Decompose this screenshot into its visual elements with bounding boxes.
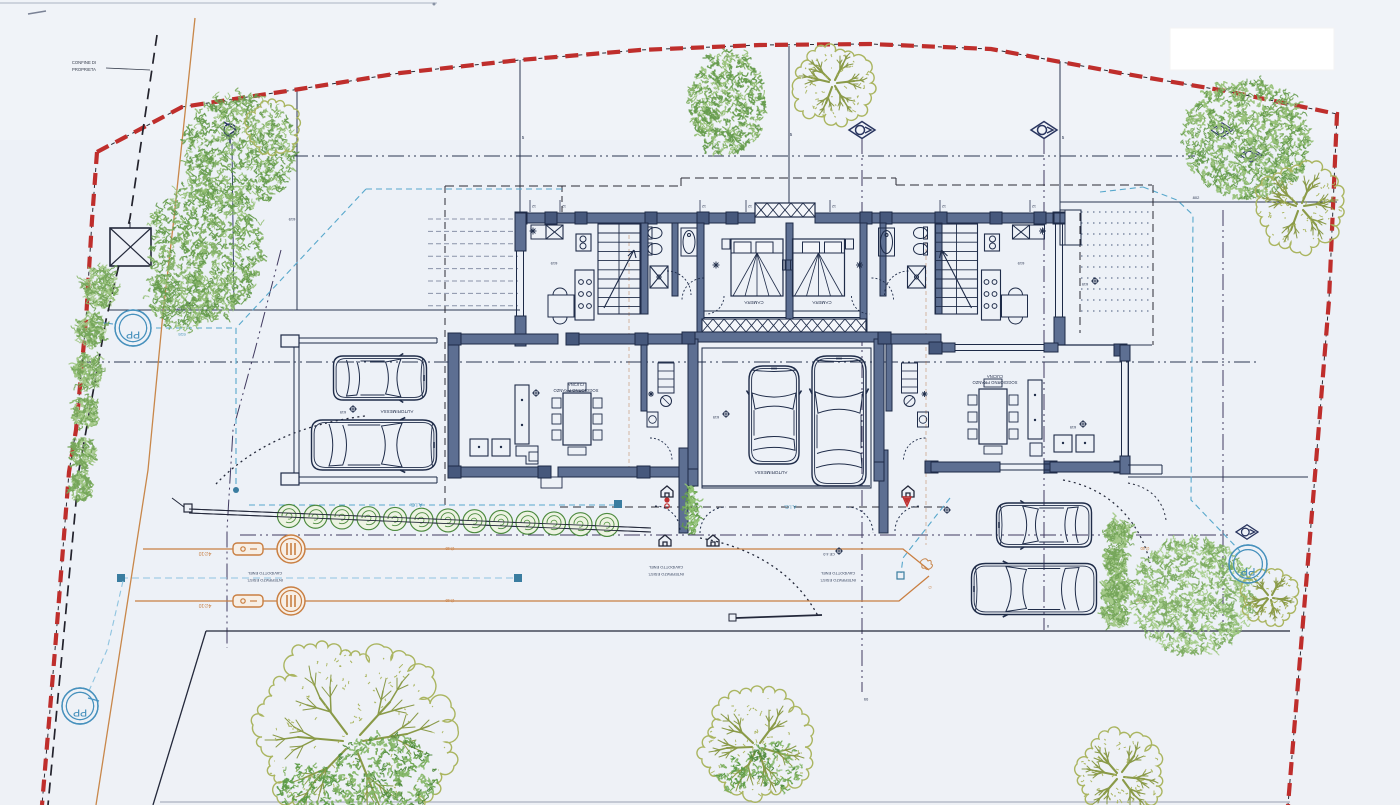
svg-text:∅40: ∅40 [445,546,454,551]
svg-text:619: 619 [550,261,557,266]
svg-text:INTERRATO ESIST.: INTERRATO ESIST. [247,578,283,583]
svg-text:616: 616 [178,332,186,337]
svg-text:CAMERA: CAMERA [812,300,831,305]
svg-text:12: 12 [832,204,836,208]
svg-text:AUTORIMESSA: AUTORIMESSA [381,409,414,414]
svg-text:CONFINE DI: CONFINE DI [72,60,96,65]
svg-text:PP: PP [1241,565,1256,577]
svg-text:619: 619 [1070,425,1076,429]
svg-text:4∅10: 4∅10 [198,602,211,608]
svg-text:CUCINA: CUCINA [987,374,1003,379]
svg-text:AUTORIMESSA: AUTORIMESSA [755,470,788,475]
svg-text:4∅10: 4∅10 [198,550,211,556]
svg-text:CE 4.0: CE 4.0 [823,552,835,556]
svg-text:619: 619 [288,217,295,222]
svg-text:INTERRATO ESIST.: INTERRATO ESIST. [648,572,684,577]
svg-text:∅40: ∅40 [1140,546,1149,551]
svg-text:A.I.G.: A.I.G. [410,501,423,507]
svg-text:12: 12 [1032,204,1036,208]
svg-text:12: 12 [532,204,536,208]
svg-text:CAVIDOTTO ENEL: CAVIDOTTO ENEL [820,571,855,576]
svg-text:INTERRATO ESIST.: INTERRATO ESIST. [820,578,856,583]
svg-text:12: 12 [702,204,706,208]
svg-text:SOGGIORNO PRANZO: SOGGIORNO PRANZO [972,380,1018,385]
svg-text:SOGGIORNO PRANZO: SOGGIORNO PRANZO [553,388,599,393]
svg-text:PROPRIETA: PROPRIETA [72,67,96,72]
svg-text:CAMERA: CAMERA [744,300,763,305]
svg-text:12: 12 [748,204,752,208]
svg-text:619: 619 [1017,261,1024,266]
svg-text:619: 619 [340,410,346,414]
svg-text:CUCINA: CUCINA [568,382,584,387]
svg-text:CAVIDOTTO ENEL: CAVIDOTTO ENEL [648,565,683,570]
svg-text:802: 802 [1193,195,1200,200]
svg-text:12: 12 [942,204,946,208]
svg-text:PP: PP [73,707,87,718]
svg-text:619: 619 [1082,282,1088,286]
svg-text:CAVIDOTTO ENEL: CAVIDOTTO ENEL [247,571,282,576]
svg-text:PP: PP [126,329,140,340]
svg-text:∅: ∅ [928,585,932,590]
svg-text:A.I.G.: A.I.G. [784,503,797,509]
svg-text:∅40: ∅40 [445,598,454,603]
svg-text:12: 12 [562,204,566,208]
svg-text:05: 05 [863,697,868,702]
svg-text:619: 619 [713,415,719,419]
